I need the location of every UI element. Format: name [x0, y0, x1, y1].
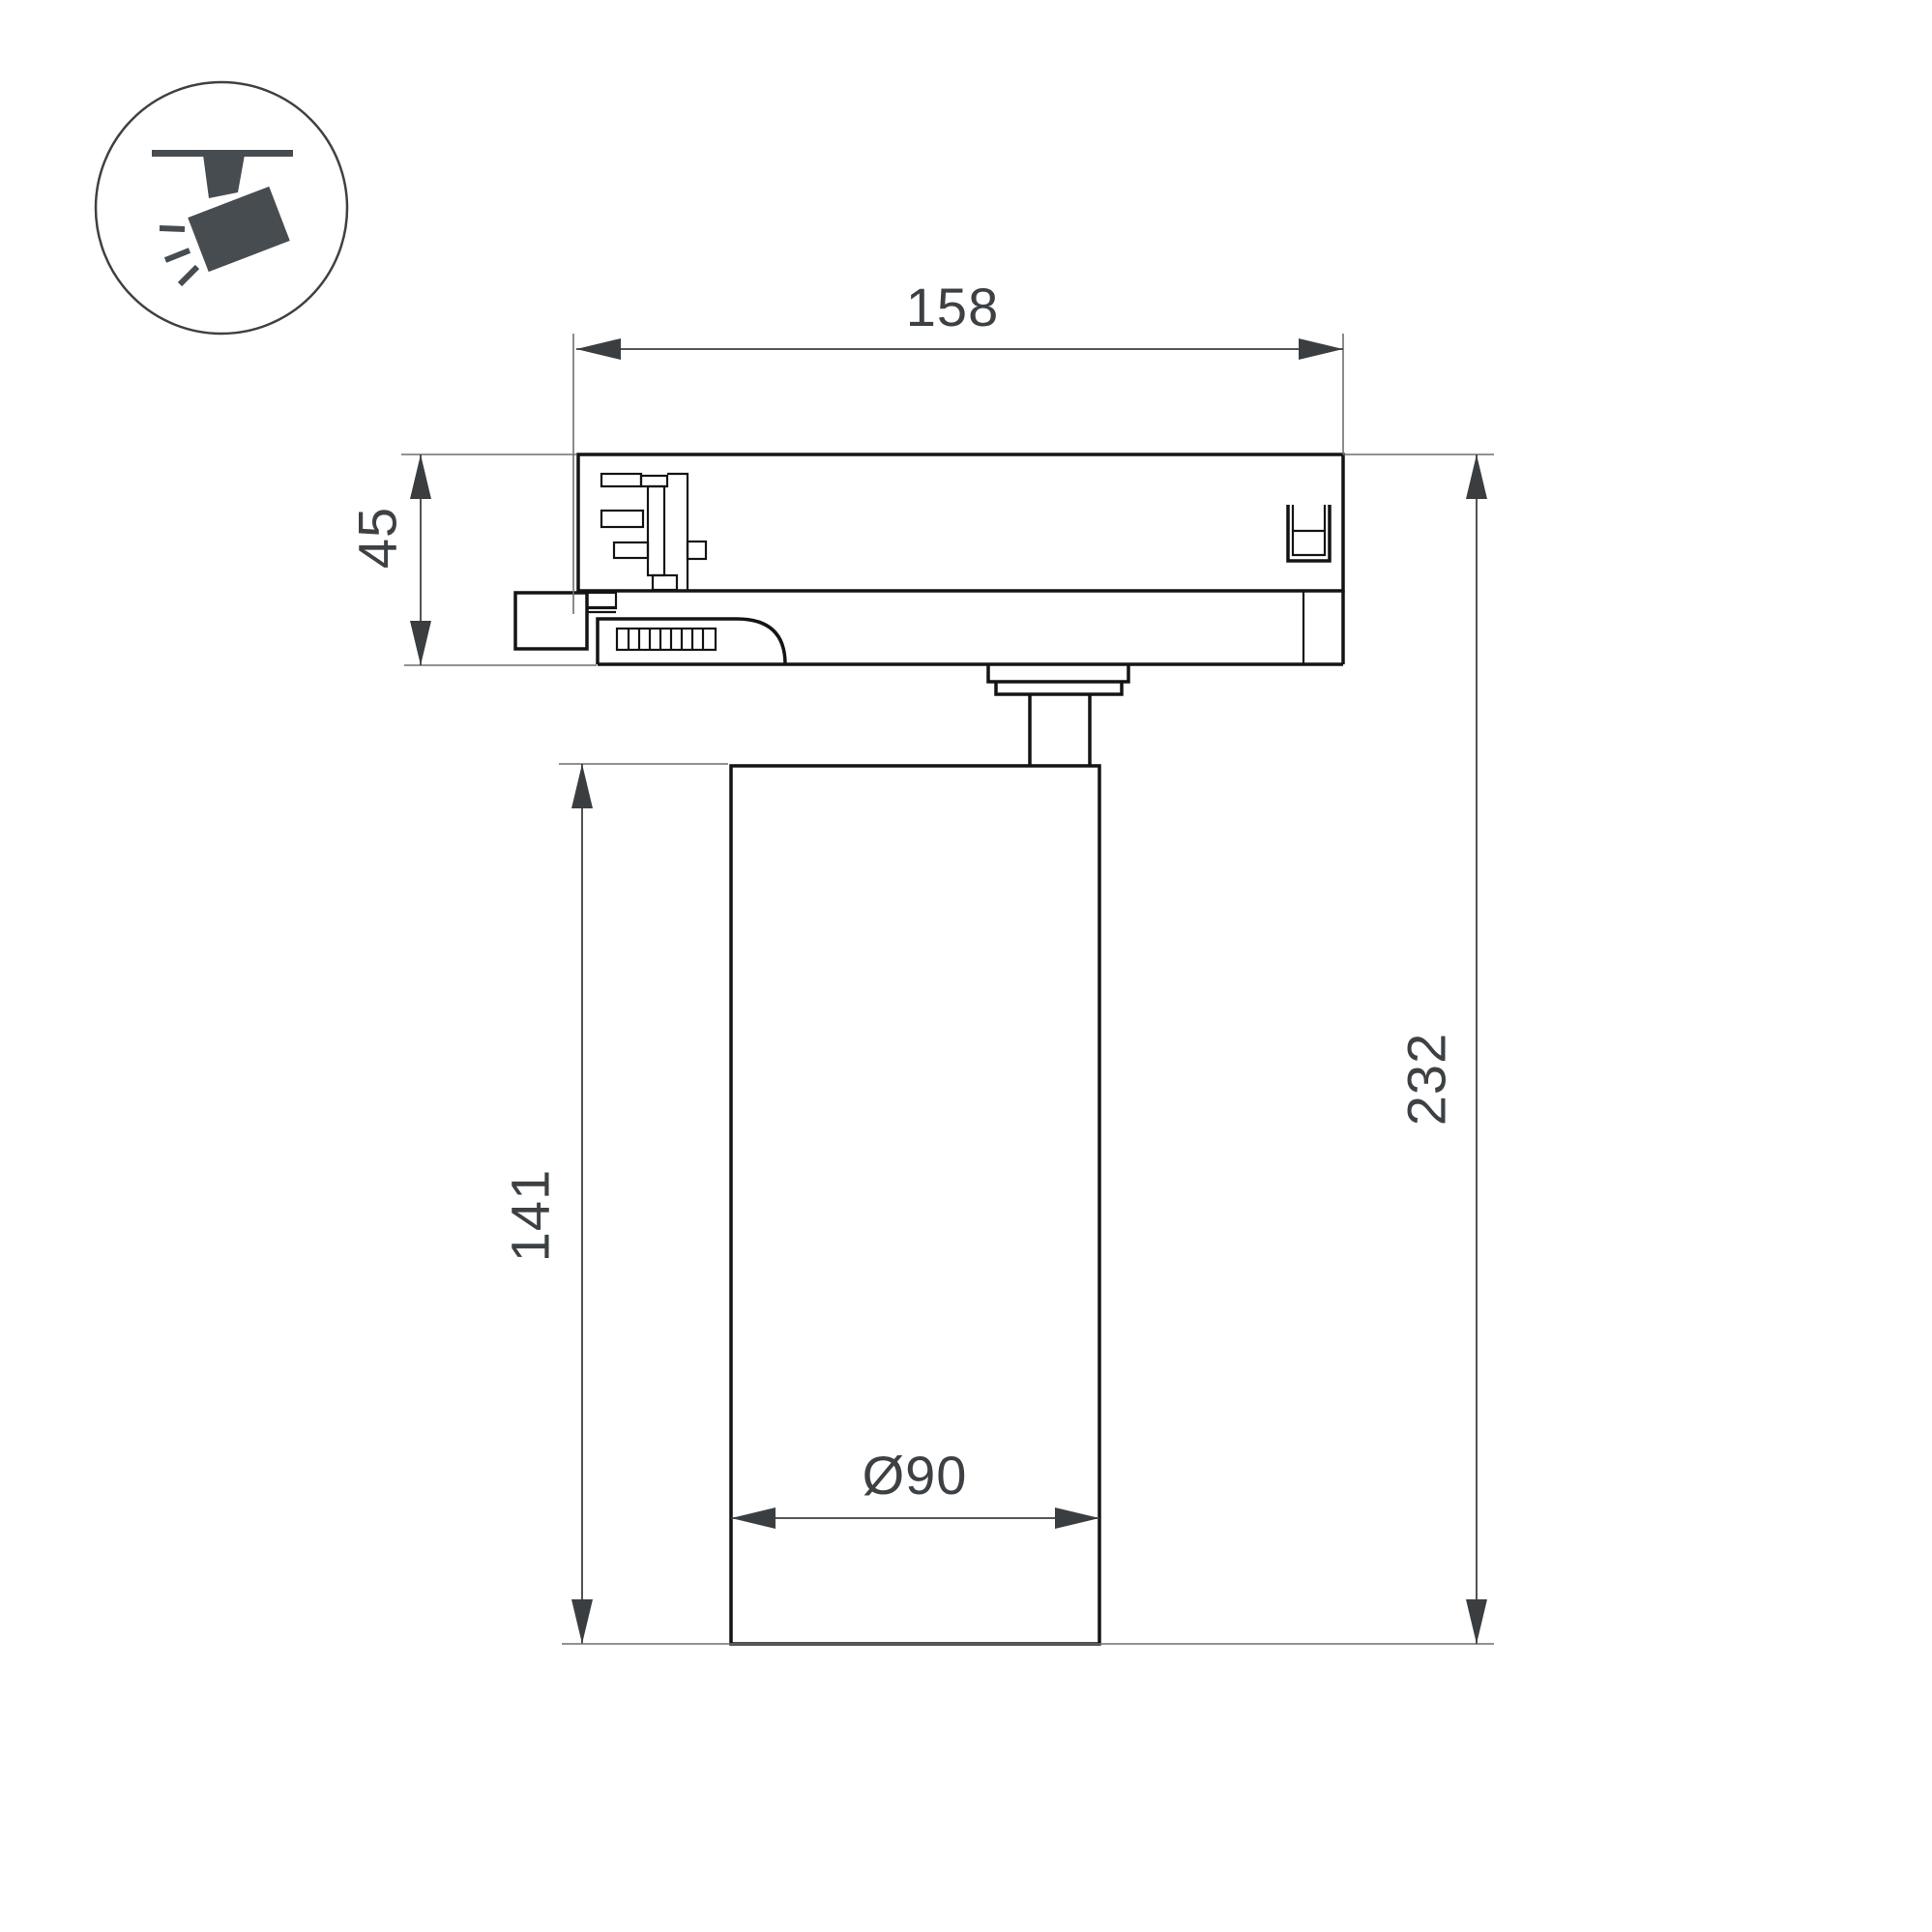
swivel-joint: [988, 664, 1128, 766]
dim-label-141: 141: [500, 1169, 561, 1262]
dimension-total-height: 232: [562, 454, 1494, 1644]
dim-label-diameter: Ø90: [863, 1445, 968, 1506]
adapter-ribbed-switch: [617, 629, 716, 650]
dim-label-232: 232: [1396, 1033, 1457, 1126]
adapter-latch: [587, 593, 616, 608]
flange-step-1: [988, 664, 1128, 682]
track-adapter-outline: [515, 454, 1343, 664]
dimension-adapter-height: 45: [347, 454, 597, 665]
flange-step-2: [996, 682, 1122, 694]
technical-drawing: 158 45 141: [0, 0, 1932, 1932]
adapter-contact-assembly: [601, 474, 706, 590]
dimension-body-height: 141: [500, 764, 728, 1644]
dim-label-45: 45: [347, 507, 408, 569]
dim-label-158: 158: [906, 277, 999, 337]
adapter-clamp-block: [515, 593, 587, 649]
track-spotlight-icon: [96, 82, 347, 334]
cylinder-body: [731, 766, 1099, 1644]
drawing-canvas: 158 45 141: [0, 0, 1932, 1932]
dimension-diameter: Ø90: [731, 1445, 1099, 1529]
icon-light-ray: [160, 228, 185, 229]
dimension-width-top: 158: [573, 277, 1343, 614]
adapter-u-clip: [1288, 505, 1330, 561]
adapter-upper-box: [578, 454, 1343, 591]
